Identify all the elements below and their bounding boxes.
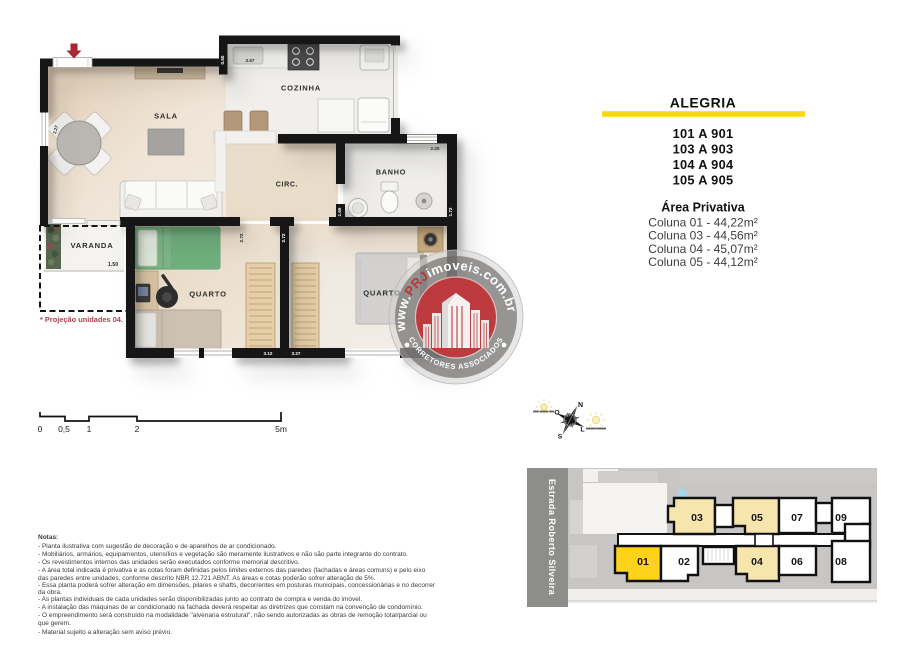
svg-text:0,5: 0,5 [58, 424, 70, 434]
svg-text:L: L [580, 427, 584, 434]
svg-text:1.72: 1.72 [448, 207, 453, 216]
svg-text:01: 01 [637, 556, 649, 568]
svg-text:que gerem.: que gerem. [38, 620, 71, 627]
svg-text:07: 07 [791, 512, 803, 524]
svg-text:06: 06 [791, 556, 803, 568]
svg-text:VARANDA: VARANDA [70, 241, 113, 250]
svg-text:08: 08 [835, 556, 847, 568]
svg-text:Notas:: Notas: [38, 534, 58, 541]
svg-text:104 A 904: 104 A 904 [673, 157, 734, 172]
svg-text:0.50: 0.50 [220, 55, 225, 64]
svg-text:105 A 905: 105 A 905 [673, 173, 734, 188]
svg-text:04: 04 [751, 556, 763, 568]
svg-text:0: 0 [38, 424, 43, 434]
svg-text:S: S [558, 434, 563, 441]
svg-text:1: 1 [87, 424, 92, 434]
svg-text:Coluna 05 - 44,12m²: Coluna 05 - 44,12m² [648, 255, 757, 269]
svg-text:das paredes entre unidades, co: das paredes entre unidades, conforme des… [38, 575, 376, 582]
svg-text:CIRC.: CIRC. [276, 180, 299, 189]
svg-text:ALEGRIA: ALEGRIA [670, 95, 737, 111]
svg-text:2.72: 2.72 [239, 233, 244, 242]
svg-text:1.50: 1.50 [108, 262, 119, 268]
svg-text:O: O [554, 410, 559, 417]
svg-text:5m: 5m [275, 424, 287, 434]
svg-text:BANHO: BANHO [376, 168, 406, 177]
svg-text:2.25: 2.25 [431, 146, 440, 151]
svg-text:COZINHA: COZINHA [281, 84, 321, 93]
svg-text:- Essa planta poderá sofrer al: - Essa planta poderá sofrer alteração em… [38, 582, 436, 589]
svg-text:Área Privativa: Área Privativa [661, 200, 745, 215]
svg-text:3.57: 3.57 [246, 58, 255, 63]
svg-text:- Mobiliários, armários, equip: - Mobiliários, armários, equipamentos, u… [38, 551, 408, 558]
svg-text:N: N [578, 402, 583, 409]
svg-text:- O empreendimento será constr: - O empreendimento será construído na mo… [38, 612, 427, 619]
svg-text:Coluna 01 - 44,22m²: Coluna 01 - 44,22m² [648, 216, 757, 230]
svg-text:1.65: 1.65 [337, 207, 342, 216]
svg-text:- A instalação das máquinas de: - A instalação das máquinas de ar condic… [38, 604, 423, 611]
svg-text:03: 03 [691, 512, 703, 524]
svg-text:- Material sujeito a alteração: - Material sujeito a alteração sem aviso… [38, 629, 172, 636]
svg-text:101 A 901: 101 A 901 [673, 126, 734, 141]
svg-text:2: 2 [135, 424, 140, 434]
svg-text:02: 02 [678, 556, 690, 568]
svg-text:Coluna 03 - 44,56m²: Coluna 03 - 44,56m² [648, 229, 757, 243]
svg-text:103 A 903: 103 A 903 [673, 142, 734, 157]
svg-text:Estrada Roberto Silveira: Estrada Roberto Silveira [547, 479, 557, 596]
svg-text:05: 05 [751, 512, 763, 524]
svg-text:QUARTO: QUARTO [189, 290, 227, 299]
svg-text:3.27: 3.27 [292, 351, 301, 356]
svg-text:* Projeção unidades 04.: * Projeção unidades 04. [40, 315, 123, 324]
svg-text:09: 09 [835, 512, 847, 524]
svg-text:da obra.: da obra. [38, 589, 62, 596]
svg-text:SALA: SALA [154, 112, 178, 121]
svg-text:- A área total indicada é priv: - A área total indicada é privativa e as… [38, 567, 426, 574]
svg-text:2.72: 2.72 [281, 233, 286, 242]
svg-text:3.12: 3.12 [264, 351, 273, 356]
svg-text:- Os revestimentos internos da: - Os revestimentos internos das unidades… [38, 559, 300, 566]
svg-text:Coluna 04 - 45,07m²: Coluna 04 - 45,07m² [648, 242, 757, 256]
svg-text:- Planta ilustrativa com suges: - Planta ilustrativa com sugestão de dec… [38, 543, 277, 550]
svg-text:- As plantas individuais de ca: - As plantas individuais de cada unidade… [38, 596, 362, 603]
